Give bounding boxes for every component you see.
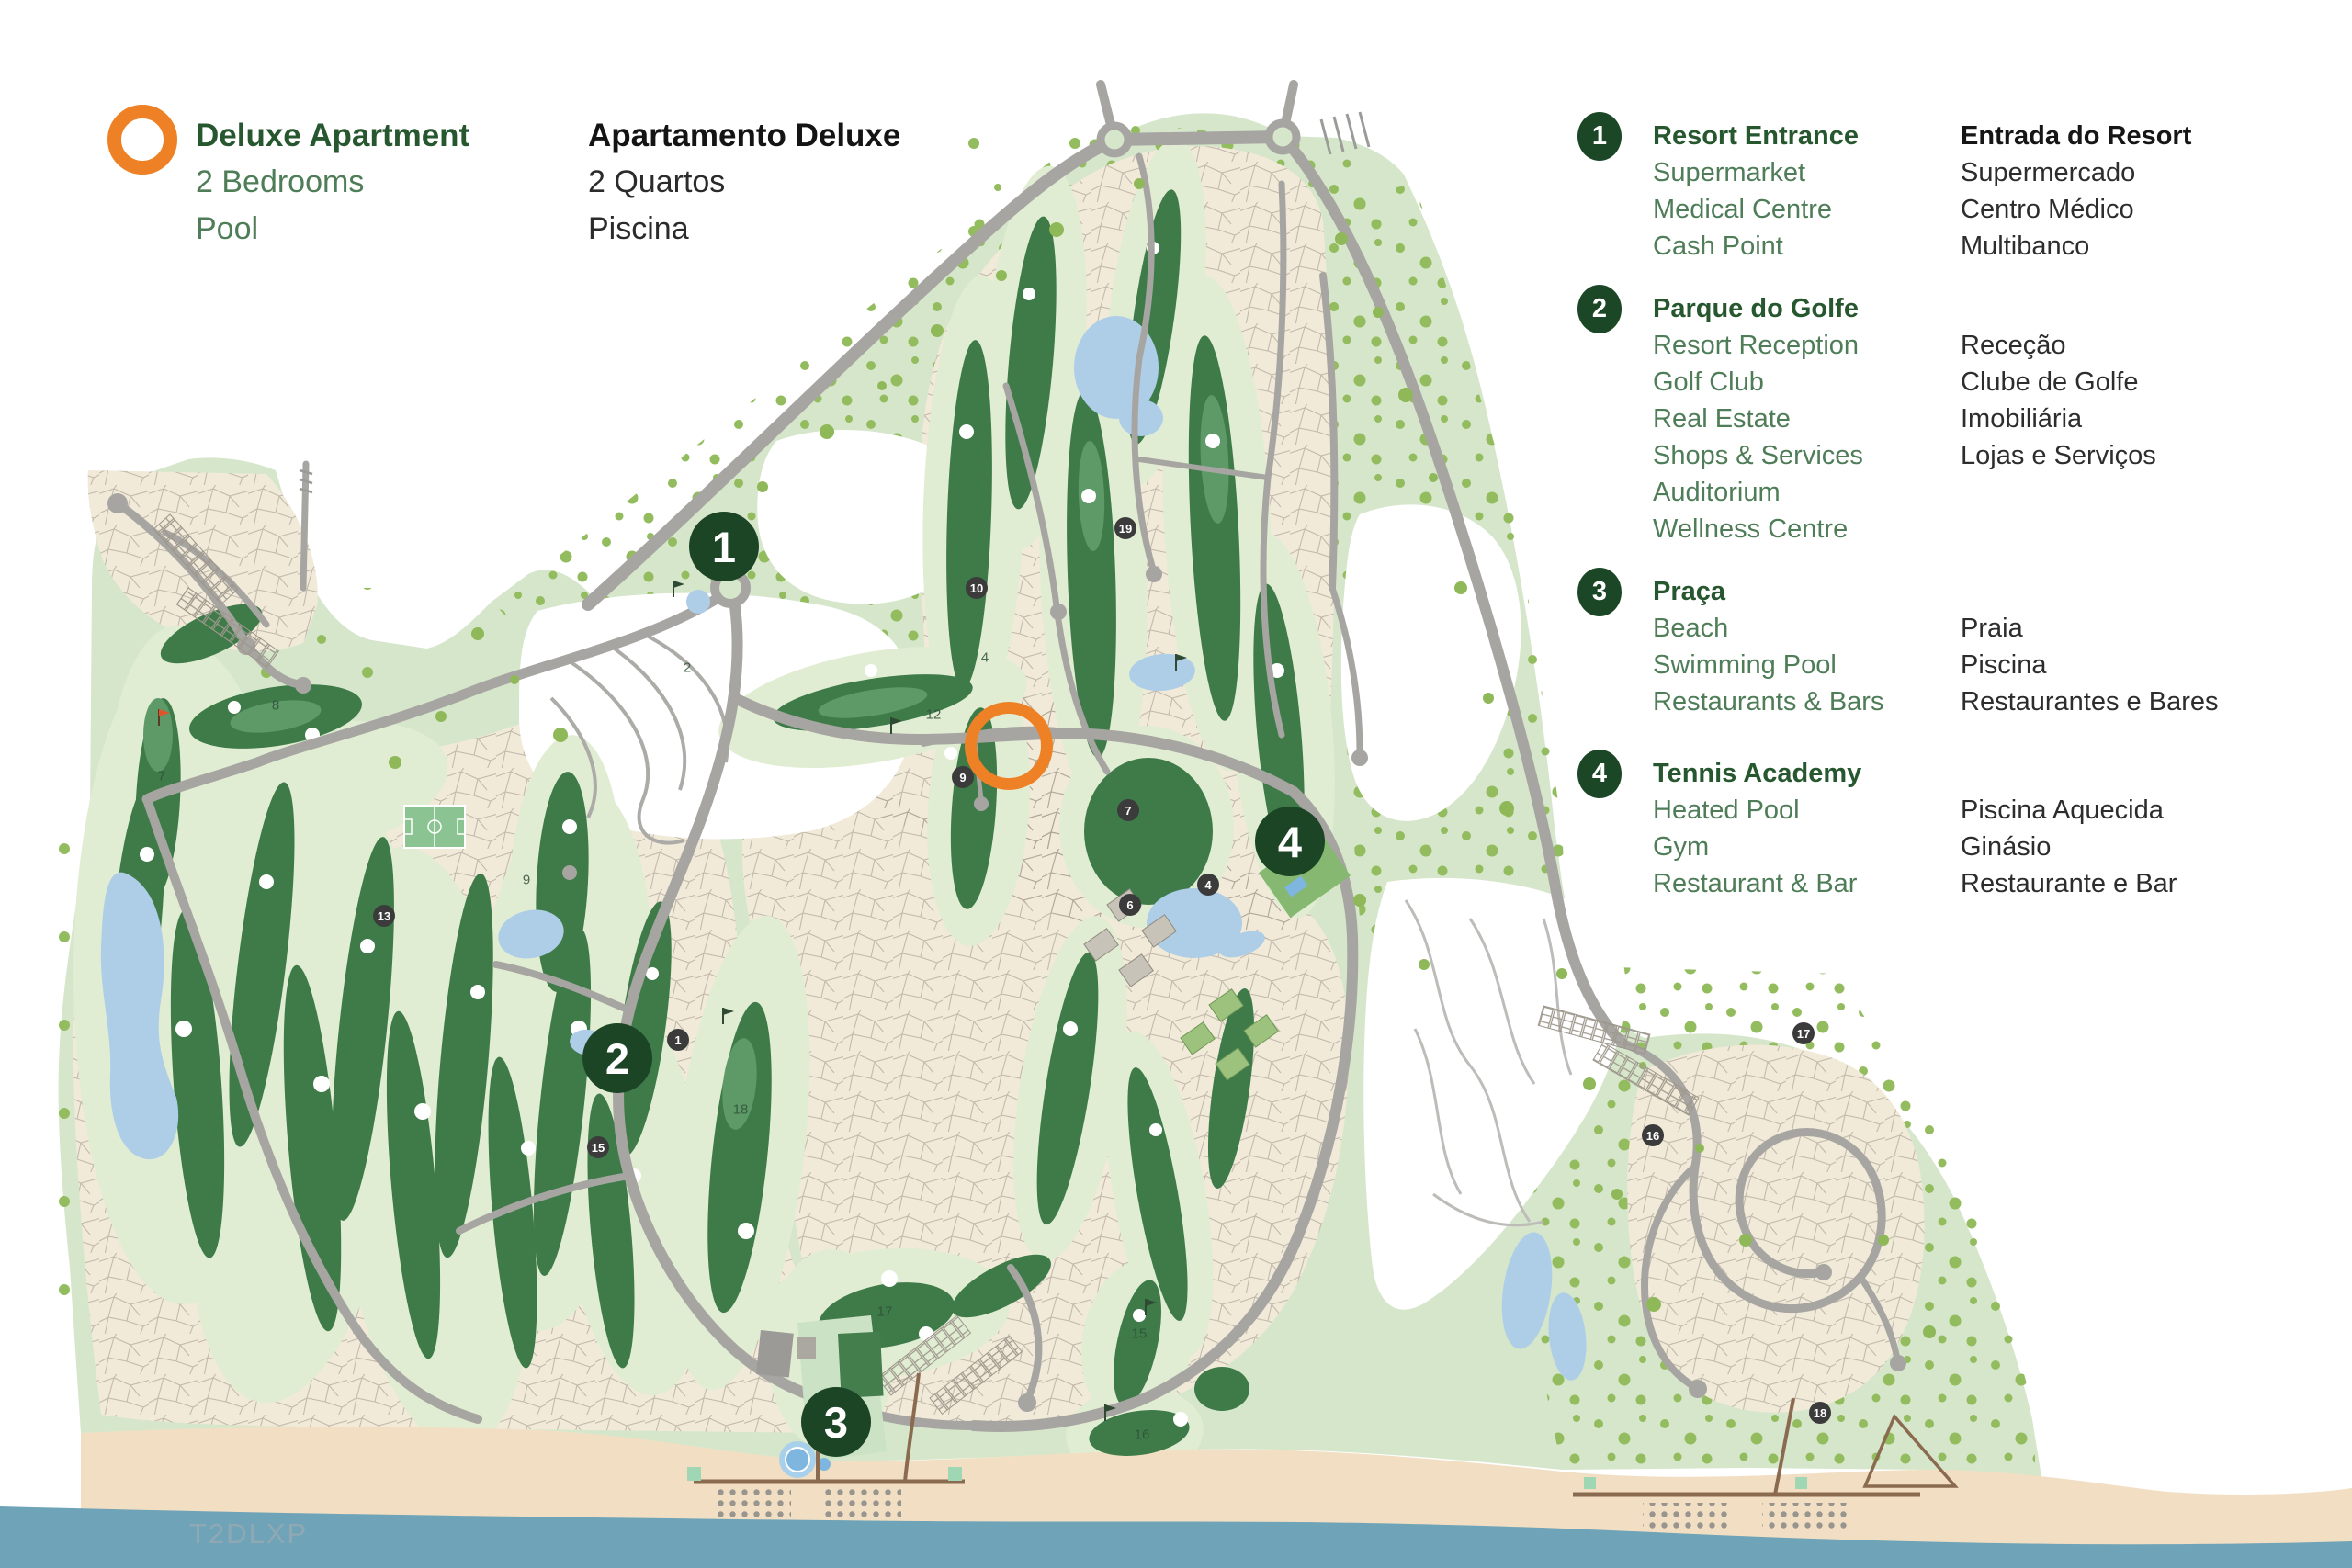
legend-row-pt: Imobiliária	[1961, 400, 2156, 437]
legend-item-3-pt: Praia Piscina Restaurantes e Bares	[1961, 573, 2218, 720]
deluxe-apartment-highlight-ring	[965, 702, 1053, 790]
deluxe-apartment-legend-icon	[107, 105, 177, 175]
legend-item-1-en: Resort Entrance Supermarket Medical Cent…	[1653, 118, 1859, 265]
header-portuguese-column: Apartamento Deluxe 2 Quartos Piscina	[588, 112, 900, 253]
legend-row: Medical Centre	[1653, 191, 1859, 228]
header-title-en: Deluxe Apartment	[196, 112, 469, 159]
map-marker-1-label: 1	[712, 522, 736, 572]
legend-row: Wellness Centre	[1653, 511, 1863, 547]
legend-row-pt: Clube de Golfe	[1961, 364, 2156, 400]
legend-title: Praça	[1653, 573, 1883, 610]
header-line2-pt: Piscina	[588, 206, 900, 253]
legend-title-pt	[1961, 290, 2156, 327]
header-english-column: Deluxe Apartment 2 Bedrooms Pool	[196, 112, 469, 253]
legend-row-pt: Piscina Aquecida	[1961, 792, 2177, 829]
header-line1-en: 2 Bedrooms	[196, 159, 469, 206]
legend-badge-1: 1	[1577, 112, 1622, 161]
hole-number: 16	[1135, 1427, 1150, 1443]
road-badge: 15	[587, 1136, 609, 1158]
legend-item-4-pt: Piscina Aquecida Ginásio Restaurante e B…	[1961, 755, 2177, 902]
legend-item-1-pt: Entrada do Resort Supermercado Centro Mé…	[1961, 118, 2191, 265]
road-badge: 16	[1642, 1124, 1664, 1146]
legend-row: Beach	[1653, 610, 1883, 647]
legend-row-pt: Receção	[1961, 327, 2156, 364]
hole-number: 2	[684, 660, 691, 676]
hole-number: 18	[733, 1102, 749, 1118]
road-badge: 4	[1197, 874, 1219, 896]
legend-row: Cash Point	[1653, 228, 1859, 265]
legend-badge-3: 3	[1577, 568, 1622, 616]
road-badge: 10	[966, 577, 988, 599]
legend-title-pt	[1961, 573, 2218, 610]
legend-title: Tennis Academy	[1653, 755, 1861, 792]
header-line2-en: Pool	[196, 206, 469, 253]
header-line1-pt: 2 Quartos	[588, 159, 900, 206]
legend-badge-2-number: 2	[1592, 294, 1607, 324]
hole-number: 4	[981, 650, 989, 666]
hole-number: 17	[877, 1304, 893, 1320]
hole-number: 15	[1132, 1326, 1148, 1342]
legend-row-pt: Piscina	[1961, 647, 2218, 683]
header-title-pt: Apartamento Deluxe	[588, 112, 900, 159]
legend-item-2-pt: Receção Clube de Golfe Imobiliária Lojas…	[1961, 290, 2156, 547]
legend-badge-2: 2	[1577, 285, 1622, 333]
legend-row: Supermarket	[1653, 154, 1859, 191]
map-marker-3: 3	[801, 1387, 871, 1457]
road-badge: 13	[373, 905, 395, 927]
legend-row-pt: Multibanco	[1961, 228, 2191, 265]
hole-number: 9	[523, 873, 530, 888]
legend-row: Resort Reception	[1653, 327, 1863, 364]
legend-row: Swimming Pool	[1653, 647, 1883, 683]
resort-map-page: 1 2 3 4 19 10 13 9 7 6 4 1 15 16 17 18 8…	[0, 0, 2352, 1568]
legend-row-pt: Restaurantes e Bares	[1961, 683, 2218, 720]
legend-title: Parque do Golfe	[1653, 290, 1863, 327]
road-badge: 19	[1114, 517, 1136, 539]
soccer-pitch	[404, 806, 465, 848]
legend-row: Golf Club	[1653, 364, 1863, 400]
legend-item-4-en: Tennis Academy Heated Pool Gym Restauran…	[1653, 755, 1861, 902]
legend-row: Restaurants & Bars	[1653, 683, 1883, 720]
map-marker-2: 2	[582, 1023, 652, 1093]
map-marker-2-label: 2	[605, 1033, 629, 1084]
road-badge: 1	[667, 1029, 689, 1051]
legend-row-pt: Centro Médico	[1961, 191, 2191, 228]
road-badge: 18	[1809, 1402, 1831, 1424]
legend-badge-1-number: 1	[1592, 121, 1607, 152]
legend-row-pt: Ginásio	[1961, 829, 2177, 865]
hole-number: 8	[272, 698, 279, 714]
legend-row: Auditorium	[1653, 474, 1863, 511]
map-marker-3-label: 3	[824, 1397, 848, 1448]
legend-row-pt: Supermercado	[1961, 154, 2191, 191]
map-marker-1: 1	[689, 512, 759, 581]
legend-title: Resort Entrance	[1653, 118, 1859, 154]
legend-row-pt	[1961, 511, 2156, 547]
legend-badge-4: 4	[1577, 750, 1622, 798]
hole-number: 7	[158, 769, 165, 784]
legend-row-pt: Praia	[1961, 610, 2218, 647]
hole-number: 12	[926, 707, 942, 723]
legend-row: Gym	[1653, 829, 1861, 865]
legend-item-3-en: Praça Beach Swimming Pool Restaurants & …	[1653, 573, 1883, 720]
legend-item-2-en: Parque do Golfe Resort Reception Golf Cl…	[1653, 290, 1863, 547]
product-code-watermark: T2DLXP	[189, 1517, 308, 1551]
legend-row-pt	[1961, 474, 2156, 511]
legend-title-pt	[1961, 755, 2177, 792]
legend-row-pt: Lojas e Serviços	[1961, 437, 2156, 474]
road-badge: 7	[1117, 799, 1139, 821]
legend-row: Real Estate	[1653, 400, 1863, 437]
road-badge: 17	[1792, 1022, 1815, 1044]
legend-title-pt: Entrada do Resort	[1961, 118, 2191, 154]
legend-badge-4-number: 4	[1592, 759, 1607, 789]
legend-row: Shops & Services	[1653, 437, 1863, 474]
legend-row: Heated Pool	[1653, 792, 1861, 829]
legend-badge-3-number: 3	[1592, 577, 1607, 607]
legend-row: Restaurant & Bar	[1653, 865, 1861, 902]
map-marker-4-label: 4	[1278, 817, 1302, 867]
road-badge: 9	[952, 766, 974, 788]
road-badge: 6	[1119, 894, 1141, 916]
legend-row-pt: Restaurante e Bar	[1961, 865, 2177, 902]
map-marker-4: 4	[1255, 807, 1325, 876]
